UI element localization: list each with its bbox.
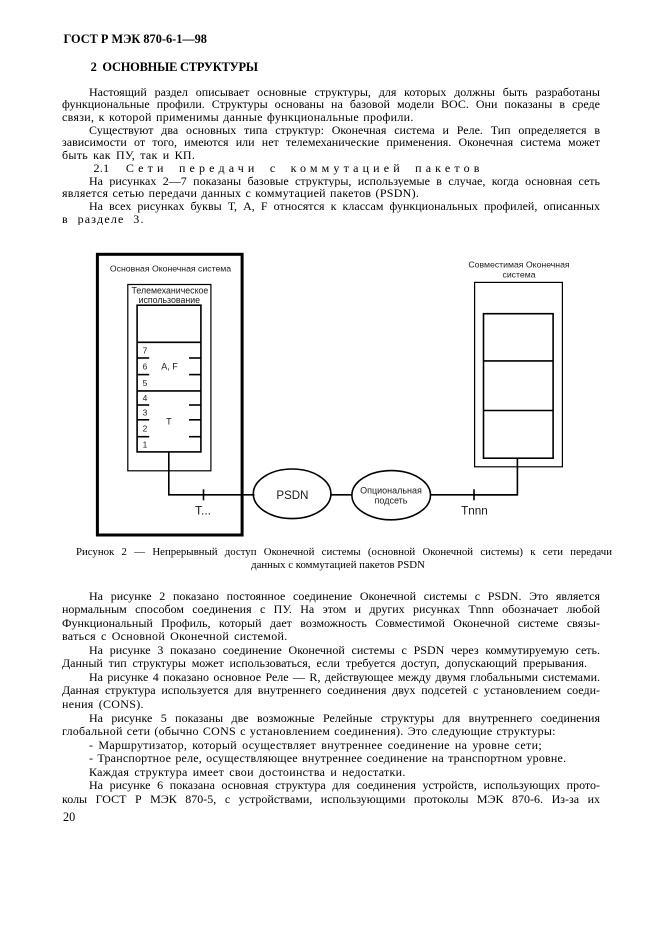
svg-text:Телемеханическое: Телемеханическое <box>131 285 208 295</box>
svg-text:4: 4 <box>143 393 148 403</box>
svg-text:T: T <box>166 417 172 427</box>
svg-text:A, F: A, F <box>161 362 178 372</box>
svg-text:система: система <box>502 269 535 279</box>
svg-text:6: 6 <box>143 362 148 372</box>
svg-text:3: 3 <box>143 408 148 418</box>
svg-text:1: 1 <box>143 440 148 450</box>
svg-text:Т...: Т... <box>195 504 211 518</box>
svg-text:5: 5 <box>143 378 148 388</box>
svg-text:Совместимая Оконечная: Совместимая Оконечная <box>468 259 570 269</box>
svg-text:подсеть: подсеть <box>375 496 408 506</box>
svg-text:2: 2 <box>143 424 148 434</box>
svg-text:Основная Оконечная система: Основная Оконечная система <box>110 263 231 273</box>
svg-text:Тnnn: Тnnn <box>461 505 488 518</box>
svg-text:PSDN: PSDN <box>276 490 308 502</box>
svg-text:использование: использование <box>139 295 201 305</box>
svg-text:Опциональная: Опциональная <box>360 486 422 496</box>
svg-text:7: 7 <box>143 345 148 355</box>
